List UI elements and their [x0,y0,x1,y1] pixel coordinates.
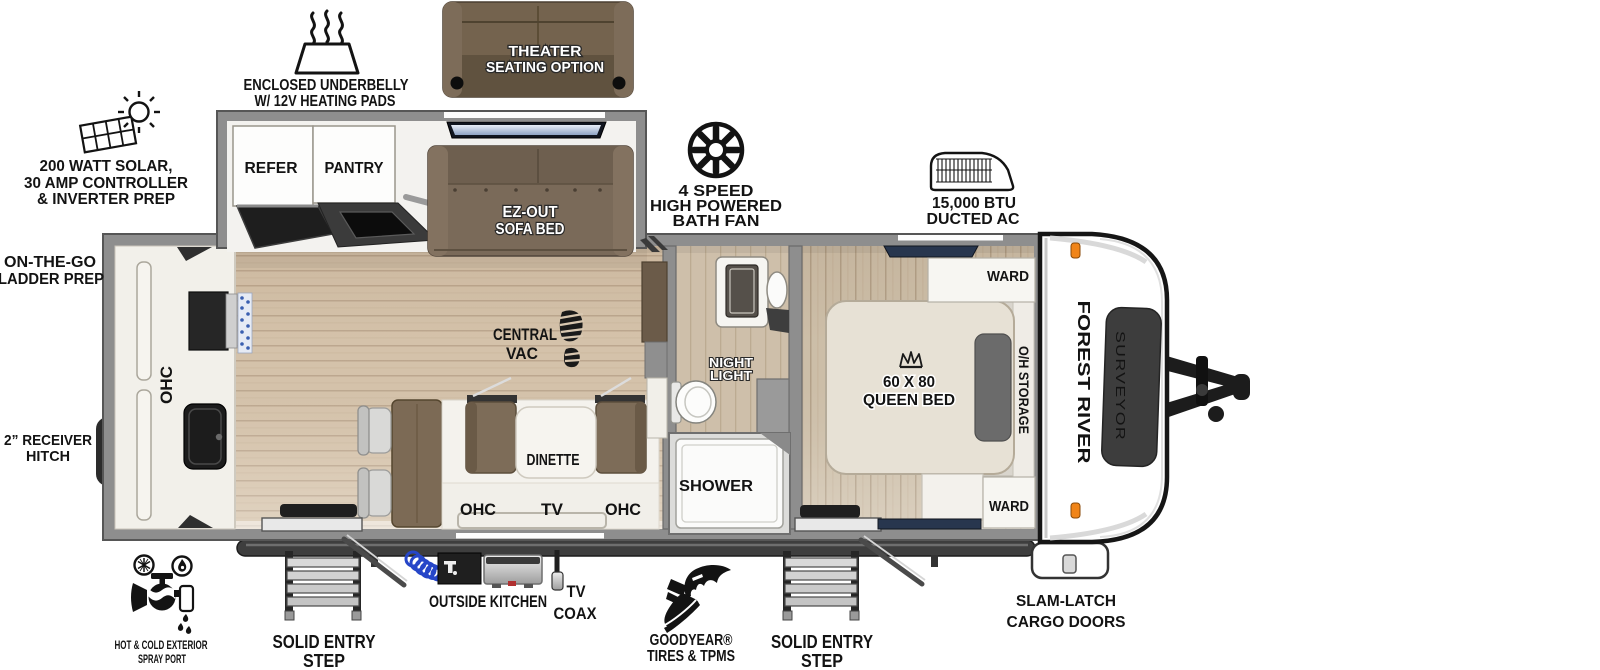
svg-text:REFER: REFER [245,160,298,177]
svg-text:STEP: STEP [801,651,843,670]
svg-text:WARD: WARD [989,498,1029,515]
svg-text:ENCLOSED UNDERBELLY: ENCLOSED UNDERBELLY [244,77,409,94]
svg-text:OHC: OHC [460,500,496,519]
svg-text:O/H STORAGE: O/H STORAGE [1016,346,1032,434]
svg-text:THEATER: THEATER [509,43,582,60]
svg-text:CARGO DOORS: CARGO DOORS [1007,614,1126,631]
svg-text:TV: TV [541,500,564,519]
svg-text:HITCH: HITCH [26,448,70,465]
svg-text:STEP: STEP [303,651,345,670]
svg-text:PANTRY: PANTRY [325,160,384,177]
svg-text:LIGHT: LIGHT [710,369,752,383]
svg-text:SLAM-LATCH: SLAM-LATCH [1016,593,1116,610]
svg-text:15,000 BTU: 15,000 BTU [932,195,1016,212]
svg-text:SEATING OPTION: SEATING OPTION [486,59,604,76]
svg-text:VAC: VAC [506,344,538,363]
svg-text:OHC: OHC [605,500,641,519]
svg-text:FOREST RIVER: FOREST RIVER [1074,301,1094,464]
svg-text:LADDER PREP: LADDER PREP [0,271,104,288]
svg-text:SOLID ENTRY: SOLID ENTRY [771,632,873,652]
svg-text:W/ 12V HEATING PADS: W/ 12V HEATING PADS [255,93,396,110]
svg-text:SPRAY PORT: SPRAY PORT [138,652,186,666]
svg-text:30 AMP CONTROLLER: 30 AMP CONTROLLER [24,175,188,192]
svg-text:TV: TV [567,582,587,601]
svg-text:HOT & COLD EXTERIOR: HOT & COLD EXTERIOR [115,638,208,652]
svg-text:OHC: OHC [157,366,176,404]
svg-text:BATH FAN: BATH FAN [673,213,760,230]
svg-text:QUEEN BED: QUEEN BED [863,392,955,409]
svg-text:& INVERTER PREP: & INVERTER PREP [37,191,175,208]
svg-text:WARD: WARD [987,268,1029,285]
svg-text:2” RECEIVER: 2” RECEIVER [4,432,92,449]
svg-text:ON-THE-GO: ON-THE-GO [4,254,96,271]
svg-text:DINETTE: DINETTE [527,452,580,469]
svg-text:CENTRAL: CENTRAL [493,325,557,344]
svg-text:NIGHT: NIGHT [709,356,753,370]
svg-text:SOLID ENTRY: SOLID ENTRY [273,632,376,652]
svg-text:EZ-OUT: EZ-OUT [503,204,558,221]
svg-text:COAX: COAX [554,604,598,623]
svg-text:SURVEYOR: SURVEYOR [1113,331,1128,441]
svg-text:OUTSIDE KITCHEN: OUTSIDE KITCHEN [429,592,547,611]
svg-text:TIRES & TPMS: TIRES & TPMS [647,648,735,665]
svg-text:DUCTED AC: DUCTED AC [927,211,1020,228]
svg-text:200 WATT SOLAR,: 200 WATT SOLAR, [40,158,173,175]
svg-text:GOODYEAR®: GOODYEAR® [650,632,733,649]
svg-text:SOFA BED: SOFA BED [496,221,565,238]
svg-text:SHOWER: SHOWER [679,478,753,495]
svg-text:60 X 80: 60 X 80 [883,374,935,391]
